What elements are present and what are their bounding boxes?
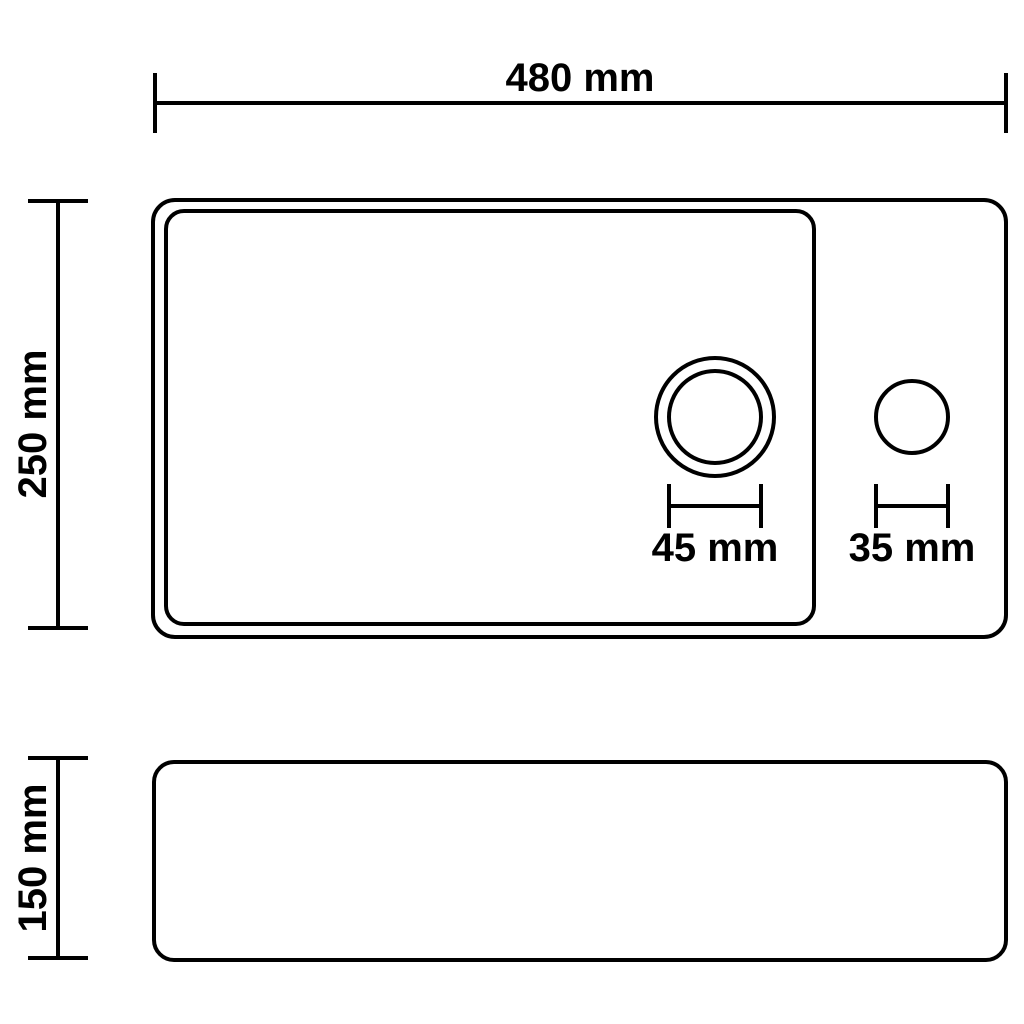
dimension-height-label: 150 mm — [11, 784, 55, 933]
sink-outer-outline — [153, 200, 1006, 637]
dimension-top-view-depth: 250 mm — [11, 201, 88, 628]
drain-hole-outer-ring — [656, 358, 774, 476]
dimension-width-label: 480 mm — [506, 56, 655, 100]
dimension-overall-width: 480 mm — [155, 56, 1006, 133]
faucet-hole-circle — [876, 381, 948, 453]
dimension-drain-hole: 45 mm — [652, 484, 779, 570]
dimension-side-view-height: 150 mm — [11, 758, 88, 958]
dimension-faucet-hole: 35 mm — [849, 484, 976, 570]
dimension-faucet-label: 35 mm — [849, 526, 976, 570]
dimension-depth-label: 250 mm — [11, 350, 55, 499]
sink-top-view — [153, 200, 1006, 637]
sink-side-outline — [154, 762, 1006, 960]
drain-hole-inner-ring — [669, 371, 761, 463]
dimension-drain-label: 45 mm — [652, 526, 779, 570]
sink-side-view — [154, 762, 1006, 960]
sink-technical-drawing: 480 mm 250 mm 45 mm 35 mm 150 mm — [0, 0, 1024, 1024]
